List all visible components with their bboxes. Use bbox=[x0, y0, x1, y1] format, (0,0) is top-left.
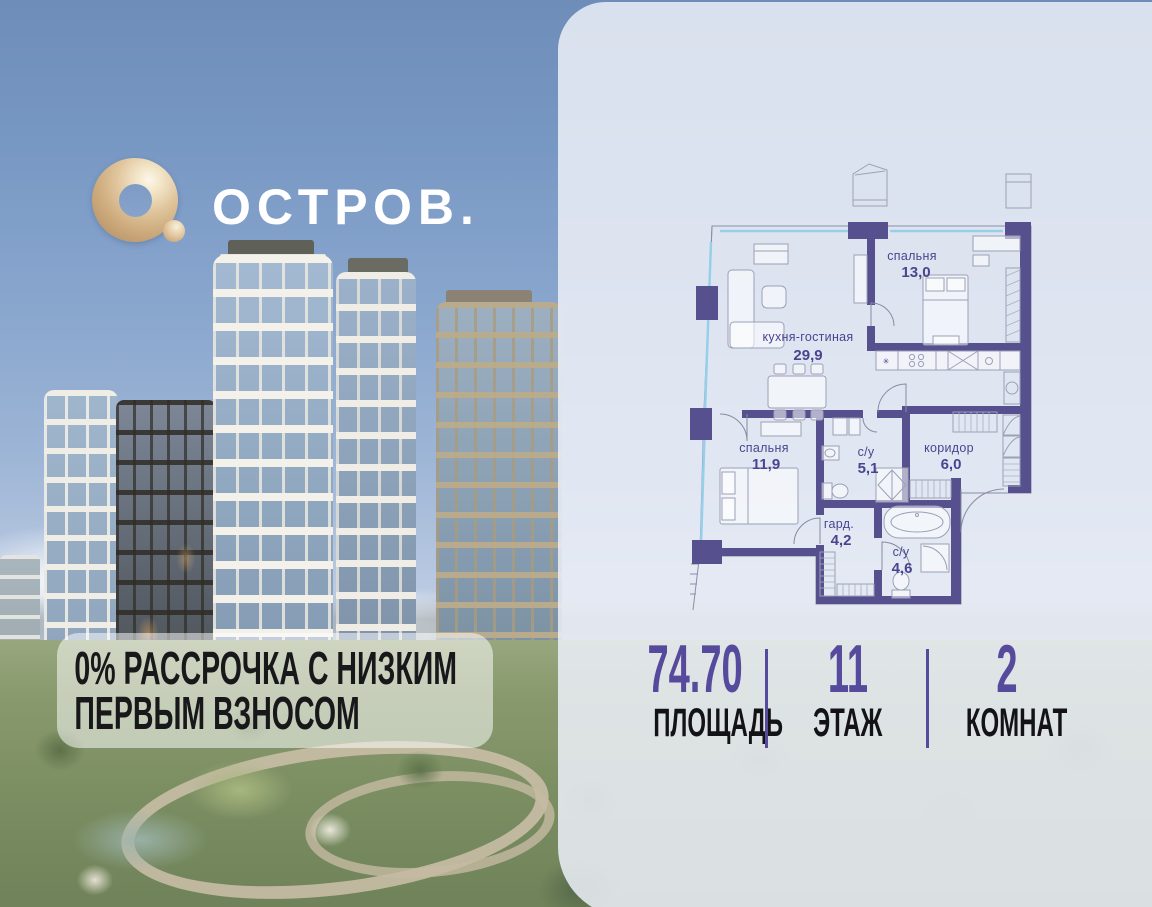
bed-symbol bbox=[923, 236, 1020, 345]
room-label-bedroom1: спальня bbox=[887, 249, 937, 263]
dining-table-symbol bbox=[768, 364, 826, 420]
hall-closets bbox=[1003, 372, 1020, 457]
stat-area-label: ПЛОЩАДЬ bbox=[610, 706, 760, 740]
kitchen-counter: ✳ bbox=[876, 351, 1020, 370]
room-area-bath1: 5,1 bbox=[858, 460, 879, 477]
bed-symbol bbox=[720, 422, 801, 524]
room-area-corridor: 6,0 bbox=[941, 456, 962, 473]
promo-line-1: 0% РАССРОЧКА С НИЗКИМ bbox=[74, 646, 327, 691]
room-label-kitchen: кухня-гостиная bbox=[763, 330, 854, 344]
floor-plan: ✳ bbox=[690, 160, 1050, 620]
logo-dot-icon bbox=[163, 220, 185, 242]
promo-banner: 0% РАССРОЧКА С НИЗКИМ ПЕРВЫМ ВЗНОСОМ bbox=[57, 633, 493, 748]
stat-floor-value: 11 bbox=[773, 638, 923, 702]
room-area-bath2: 4,6 bbox=[892, 560, 913, 577]
logo-hole bbox=[119, 184, 152, 217]
room-area-wardrobe: 4,2 bbox=[831, 532, 852, 549]
stat-area-value: 74.70 bbox=[610, 638, 760, 702]
room-label-bath2: с/у bbox=[893, 545, 910, 559]
stat-area: 74.70 ПЛОЩАДЬ bbox=[610, 638, 760, 740]
room-label-bath1: с/у bbox=[858, 445, 875, 459]
room-label-bedroom2: спальня bbox=[739, 441, 789, 455]
brand-wordmark: ОСТРОВ. bbox=[212, 180, 480, 234]
stat-floor: 11 ЭТАЖ bbox=[773, 638, 923, 740]
stat-divider bbox=[926, 649, 929, 748]
room-label-wardrobe: гард. bbox=[824, 517, 854, 531]
svg-text:✳: ✳ bbox=[883, 357, 890, 366]
room-label-corridor: коридор bbox=[924, 441, 974, 455]
stat-rooms-value: 2 bbox=[932, 638, 1082, 702]
promo-line-2: ПЕРВЫМ ВЗНОСОМ bbox=[74, 691, 327, 736]
stat-divider bbox=[765, 649, 768, 748]
room-area-bedroom2: 11,9 bbox=[752, 456, 780, 473]
stat-rooms-label: КОМНАТ bbox=[932, 706, 1082, 740]
room-area-kitchen: 29,9 bbox=[793, 347, 822, 364]
stat-floor-label: ЭТАЖ bbox=[773, 706, 923, 740]
balcony-rect bbox=[1006, 174, 1031, 208]
promo-poster: ОСТРОВ. 0% РАССРОЧКА С НИЗКИМ ПЕРВЫМ ВЗН… bbox=[0, 0, 1152, 907]
room-area-bedroom1: 13,0 bbox=[901, 264, 930, 281]
balcony-pentagon bbox=[853, 164, 887, 206]
promo-text: 0% РАССРОЧКА С НИЗКИМ ПЕРВЫМ ВЗНОСОМ bbox=[57, 633, 327, 736]
stat-rooms: 2 КОМНАТ bbox=[932, 638, 1082, 740]
